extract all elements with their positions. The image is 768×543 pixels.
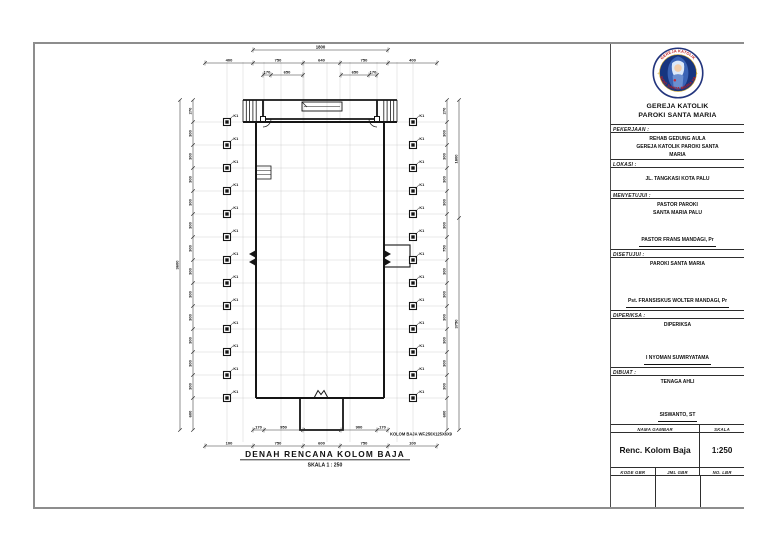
- value-pekerjaan: REHAB GEDUNG AULA GEREJA KATOLIK PAROKI …: [611, 133, 744, 159]
- svg-text:300: 300: [441, 290, 446, 297]
- svg-text:K1: K1: [233, 137, 238, 141]
- drawing-name-row: Renc. Kolom Baja 1:250: [611, 433, 744, 467]
- svg-text:K1: K1: [419, 275, 424, 279]
- signature-dibuat: SISWANTO, ST: [658, 412, 698, 422]
- signature-disetujui: Pst. FRANSISKUS WOLTER MANDAGI, Pr: [626, 298, 729, 308]
- svg-text:300: 300: [441, 198, 446, 205]
- svg-text:300: 300: [187, 313, 192, 320]
- svg-text:300: 300: [187, 244, 192, 251]
- svg-text:300: 300: [441, 313, 446, 320]
- drawing-scale: 1:250: [700, 433, 744, 467]
- steel-column-note: KOLOM BAJA WF.250X125X6X9: [390, 432, 453, 437]
- svg-text:K1: K1: [419, 390, 424, 394]
- drawing-name: Renc. Kolom Baja: [611, 433, 700, 467]
- svg-text:K1: K1: [233, 160, 238, 164]
- svg-text:K1: K1: [233, 275, 238, 279]
- svg-text:300: 300: [187, 382, 192, 389]
- value-lokasi: JL. TANGKASI KOTA PALU: [611, 168, 744, 190]
- svg-text:400: 400: [409, 57, 416, 62]
- svg-text:640: 640: [318, 57, 325, 62]
- svg-text:650: 650: [352, 69, 359, 74]
- label-disetujui: DISETUJUI :: [611, 249, 744, 258]
- no-lbr-header: NO. LBR: [700, 468, 744, 475]
- drawing-scale-label: SKALA 1 : 250: [308, 463, 343, 469]
- skala-header: SKALA: [700, 425, 744, 432]
- org-name-line1: GEREJA KATOLIK: [611, 102, 744, 111]
- label-pekerjaan: PEKERJAAN :: [611, 124, 744, 133]
- svg-text:300: 300: [441, 267, 446, 274]
- label-diperiksa: DIPERIKSA :: [611, 310, 744, 319]
- svg-text:750: 750: [441, 244, 446, 251]
- svg-text:170: 170: [264, 69, 271, 74]
- label-lokasi: LOKASI :: [611, 159, 744, 168]
- value-dibuat: TENAGA AHLI SISWANTO, ST: [611, 376, 744, 424]
- scanned-sheet-page: K1K1K1K1K1K1K1K1K1K1K1K1K1K1K1K1K1K1K1K1…: [0, 0, 768, 543]
- column-markers: K1K1K1K1K1K1K1K1K1K1K1K1K1K1K1K1K1K1K1K1…: [224, 114, 425, 402]
- footer-code-header-row: KODE GBR JML GBR NO. LBR: [611, 467, 744, 476]
- svg-text:750: 750: [275, 57, 282, 62]
- value-menyetujui: PASTOR PAROKI SANTA MARIA PALU PASTOR FR…: [611, 199, 744, 249]
- svg-text:K1: K1: [233, 206, 238, 210]
- building-outline: [243, 100, 410, 430]
- floor-plan-drawing: K1K1K1K1K1K1K1K1K1K1K1K1K1K1K1K1K1K1K1K1…: [170, 38, 480, 473]
- svg-text:K1: K1: [233, 183, 238, 187]
- svg-text:750: 750: [275, 440, 282, 445]
- svg-text:300: 300: [187, 221, 192, 228]
- svg-text:300: 300: [441, 359, 446, 366]
- nama-gambar-header: NAMA GAMBAR: [611, 425, 700, 432]
- svg-text:750: 750: [361, 57, 368, 62]
- value-diperiksa: DIPERIKSA I NYOMAN SUWIRYATAMA: [611, 319, 744, 367]
- svg-text:K1: K1: [233, 367, 238, 371]
- label-dibuat: DIBUAT :: [611, 367, 744, 376]
- svg-text:170: 170: [379, 424, 386, 429]
- svg-text:K1: K1: [233, 114, 238, 118]
- right-wall-door-symbol: [384, 250, 391, 258]
- svg-text:400: 400: [226, 57, 233, 62]
- svg-text:300: 300: [187, 129, 192, 136]
- svg-text:300: 300: [187, 175, 192, 182]
- svg-text:K1: K1: [419, 367, 424, 371]
- svg-text:K1: K1: [419, 344, 424, 348]
- svg-text:3750: 3750: [453, 319, 458, 329]
- svg-text:K1: K1: [419, 137, 424, 141]
- svg-text:K1: K1: [419, 229, 424, 233]
- value-disetujui: PAROKI SANTA MARIA Pst. FRANSISKUS WOLTE…: [611, 258, 744, 310]
- signature-diperiksa: I NYOMAN SUWIRYATAMA: [644, 355, 711, 365]
- logo-cell: + + GEREJA KATOLIK PAROKI SANTA MARIA PA…: [611, 44, 744, 102]
- drawing-title: DENAH RENCANA KOLOM BAJA: [245, 449, 405, 459]
- svg-text:3600: 3600: [174, 260, 179, 270]
- svg-text:K1: K1: [233, 298, 238, 302]
- apse-outline: [300, 398, 343, 430]
- svg-text:K1: K1: [419, 321, 424, 325]
- footer-empty-row: [611, 476, 744, 507]
- svg-text:K1: K1: [419, 160, 424, 164]
- svg-text:1800: 1800: [316, 44, 326, 49]
- svg-text:170: 170: [370, 69, 377, 74]
- svg-text:950: 950: [280, 424, 287, 429]
- no-lbr-cell: [701, 476, 744, 507]
- svg-text:300: 300: [441, 336, 446, 343]
- kode-gbr-header: KODE GBR: [611, 468, 656, 475]
- jml-gbr-header: JML GBR: [656, 468, 701, 475]
- svg-text:300: 300: [187, 267, 192, 274]
- svg-text:K1: K1: [233, 390, 238, 394]
- svg-text:K1: K1: [233, 252, 238, 256]
- svg-text:300: 300: [441, 382, 446, 389]
- svg-text:+: +: [656, 71, 659, 76]
- svg-text:300: 300: [441, 175, 446, 182]
- svg-text:300: 300: [441, 129, 446, 136]
- svg-text:1800: 1800: [453, 154, 458, 164]
- svg-text:650: 650: [284, 69, 291, 74]
- svg-text:300: 300: [187, 198, 192, 205]
- svg-text:K1: K1: [419, 252, 424, 256]
- svg-text:900: 900: [356, 424, 363, 429]
- drawing-caption: KOLOM BAJA WF.250X125X6X9DENAH RENCANA K…: [240, 432, 453, 469]
- jml-gbr-cell: [656, 476, 701, 507]
- kode-gbr-cell: [611, 476, 656, 507]
- apse-door-symbol: [314, 391, 328, 399]
- organization-name: GEREJA KATOLIK PAROKI SANTA MARIA: [611, 102, 744, 124]
- footer-header-row: NAMA GAMBAR SKALA: [611, 424, 744, 433]
- svg-text:600: 600: [187, 410, 192, 417]
- svg-text:100: 100: [409, 440, 416, 445]
- svg-text:170: 170: [255, 424, 262, 429]
- svg-text:K1: K1: [419, 114, 424, 118]
- svg-text:270: 270: [187, 107, 192, 114]
- svg-text:K1: K1: [419, 206, 424, 210]
- svg-text:300: 300: [187, 359, 192, 366]
- signature-menyetujui: PASTOR FRANS MANDAGI, Pr: [639, 237, 715, 247]
- svg-text:300: 300: [441, 221, 446, 228]
- svg-text:K1: K1: [233, 321, 238, 325]
- label-menyetujui: MENYETUJUI :: [611, 190, 744, 199]
- svg-text:270: 270: [441, 107, 446, 114]
- svg-text:100: 100: [226, 440, 233, 445]
- svg-text:K1: K1: [419, 298, 424, 302]
- svg-text:600: 600: [441, 410, 446, 417]
- svg-text:750: 750: [361, 440, 368, 445]
- svg-text:K1: K1: [233, 344, 238, 348]
- svg-text:300: 300: [187, 290, 192, 297]
- org-name-line2: PAROKI SANTA MARIA: [611, 111, 744, 120]
- svg-text:600: 600: [318, 440, 325, 445]
- svg-text:+: +: [695, 71, 698, 76]
- svg-text:300: 300: [187, 152, 192, 159]
- left-wall-door-symbol: [249, 250, 256, 258]
- svg-text:K1: K1: [419, 183, 424, 187]
- svg-text:300: 300: [187, 336, 192, 343]
- parish-logo-icon: + + GEREJA KATOLIK PAROKI SANTA MARIA PA…: [651, 46, 705, 100]
- svg-text:300: 300: [441, 152, 446, 159]
- title-block: + + GEREJA KATOLIK PAROKI SANTA MARIA PA…: [610, 44, 744, 507]
- svg-text:K1: K1: [233, 229, 238, 233]
- dimension-chains: 1800400750640750400170650650170170950900…: [174, 44, 460, 448]
